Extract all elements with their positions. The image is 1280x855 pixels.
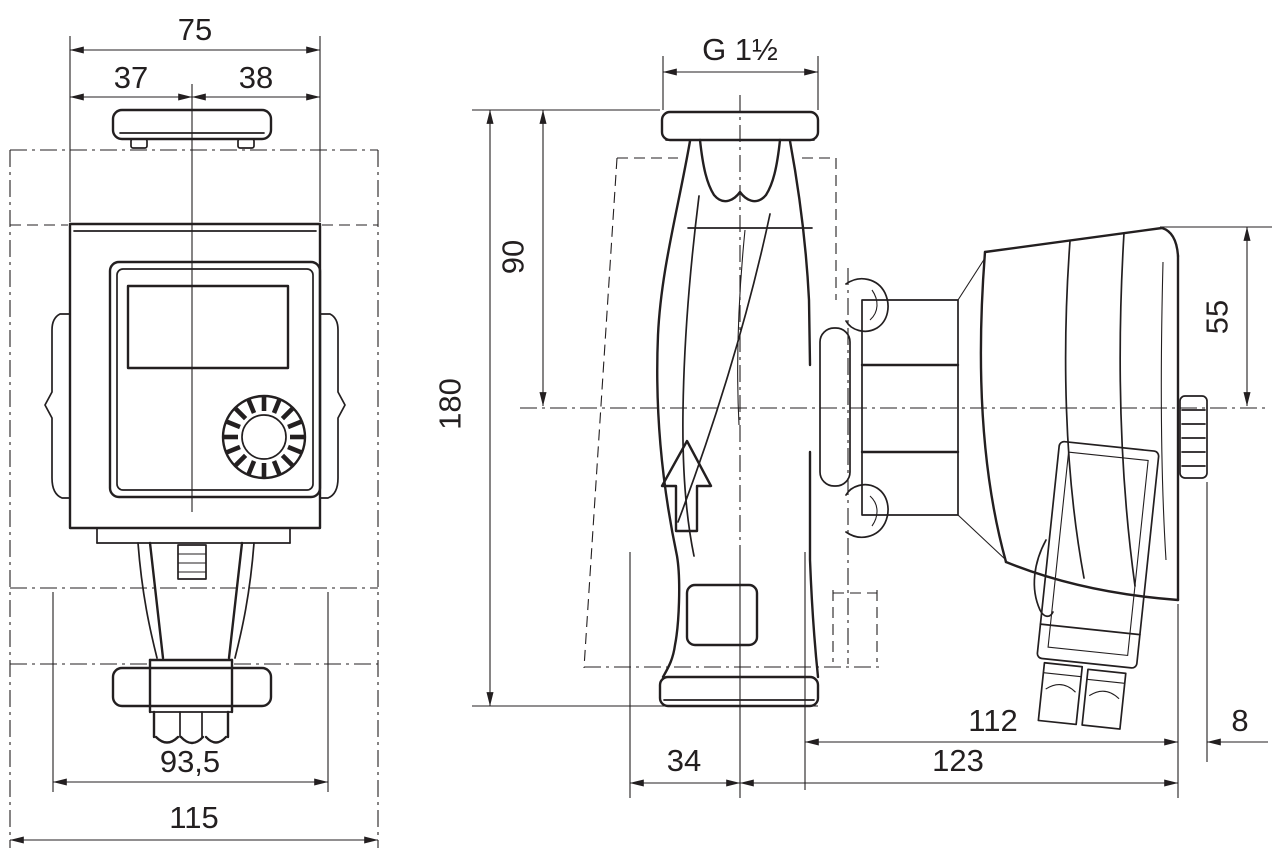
bottom-port-flange bbox=[660, 677, 818, 706]
pump-neck-front bbox=[97, 528, 290, 658]
dim-label-115: 115 bbox=[169, 800, 218, 835]
insulation-shell-outline bbox=[584, 158, 880, 668]
clamp-hook-top bbox=[846, 279, 888, 332]
volute-body bbox=[657, 141, 818, 706]
terminal-box bbox=[1030, 441, 1159, 730]
motor-housing bbox=[820, 228, 1207, 730]
right-clip-tab bbox=[320, 314, 345, 498]
clamp-ring bbox=[820, 328, 850, 486]
side-centerlines bbox=[472, 95, 1272, 798]
display-window bbox=[128, 286, 288, 368]
dim-label-75: 75 bbox=[178, 12, 212, 47]
union-flange-front bbox=[113, 660, 271, 743]
module-body bbox=[45, 224, 345, 528]
knob-knurl-ticks bbox=[224, 397, 304, 477]
terminal-plug-left bbox=[1038, 663, 1082, 725]
clamp-detail bbox=[178, 545, 206, 579]
side-view: G 1½ 90 180 55 34 123 112 8 bbox=[433, 32, 1273, 798]
nameplate bbox=[687, 585, 757, 645]
pump-drawing-canvas: 75 37 38 93,5 115 bbox=[0, 0, 1280, 855]
dim-label-55: 55 bbox=[1200, 300, 1235, 334]
dim-label-123: 123 bbox=[932, 743, 984, 778]
dim-label-93-5: 93,5 bbox=[160, 744, 220, 779]
dim-label-90: 90 bbox=[496, 240, 531, 274]
dim-label-34: 34 bbox=[667, 743, 701, 778]
dim-label-112: 112 bbox=[968, 703, 1017, 738]
terminal-plug-right bbox=[1082, 669, 1126, 729]
clamp-hook-bottom bbox=[846, 485, 888, 538]
dim-label-8: 8 bbox=[1231, 703, 1248, 738]
left-clip-tab bbox=[45, 314, 70, 498]
dim-label-38: 38 bbox=[239, 60, 273, 95]
front-dimensions: 75 37 38 93,5 115 bbox=[10, 12, 378, 840]
union-nut bbox=[154, 712, 228, 743]
front-view: 75 37 38 93,5 115 bbox=[10, 12, 378, 848]
dimension-drawing: 75 37 38 93,5 115 bbox=[0, 0, 1280, 855]
control-knob bbox=[223, 396, 305, 478]
dim-label-180: 180 bbox=[433, 378, 468, 430]
dim-label-37: 37 bbox=[114, 60, 148, 95]
dim-label-thread: G 1½ bbox=[702, 32, 778, 67]
